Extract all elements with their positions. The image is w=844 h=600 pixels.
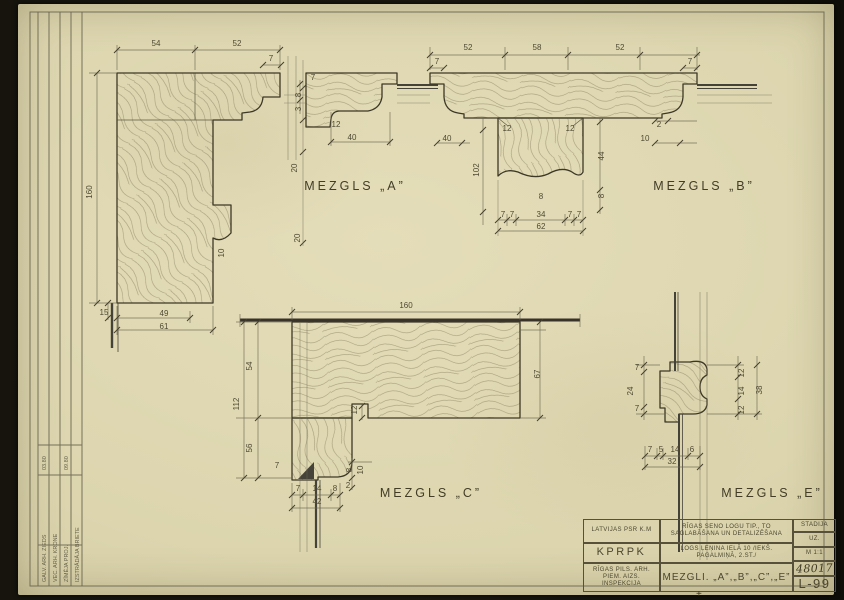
- dimension-text: 8: [345, 467, 354, 472]
- margin-date: 03.80: [42, 456, 48, 470]
- stage-label-text: STADIJA: [801, 522, 828, 529]
- dimension-text: 12: [503, 124, 512, 133]
- stamp-stage-value: UZ.: [793, 532, 836, 547]
- org-top-text: LATVIJAS PSR K.M: [592, 527, 652, 534]
- stage-value-text: UZ.: [809, 536, 820, 543]
- dimension-text: 42: [313, 497, 322, 506]
- stamp-sheet-title: MEZGLI. „A”,„B”,„C”,„E”: [660, 563, 793, 592]
- dimension-text: 7: [635, 363, 640, 372]
- dimension-text: 7: [510, 210, 515, 219]
- dimension-text: 40: [348, 133, 357, 142]
- stamp-project-title: RĪGAS SENO LOGU TIP., TO SAGLABĀŠANA UN …: [660, 519, 793, 543]
- dimension-text: 40: [443, 134, 452, 143]
- dimension-text: 7: [568, 210, 573, 219]
- dimension-text: 7: [635, 404, 640, 413]
- margin-date: 09.80: [64, 456, 70, 470]
- dimension-text: 38: [755, 385, 764, 394]
- stamp-scale: M 1:1: [793, 547, 836, 561]
- order-number-text: 48017: [796, 561, 833, 575]
- registration-mark: +: [696, 589, 702, 600]
- dimension-text: 102: [472, 163, 481, 177]
- margin-strip-grid: [38, 12, 82, 586]
- margin-signature-row: VEC. ARH. KRONE: [53, 533, 59, 582]
- wood-sash-a: [306, 73, 397, 127]
- dimension-text: 7: [577, 210, 582, 219]
- stamp-object: LOGS ĻEŅINA IELĀ 10 /IEKŠ. PAGALMIŅĀ, 2.…: [660, 543, 793, 563]
- dimension-text: 52: [464, 43, 473, 52]
- wood-jamb-c: [292, 418, 352, 480]
- stamp-org-main: KPRPK: [583, 543, 660, 563]
- dimension-text: 49: [160, 309, 169, 318]
- mezgls-e-label: MEZGLS „E”: [721, 486, 823, 500]
- dimension-text: 61: [160, 322, 169, 331]
- mezgls-c-label: MEZGLS „C”: [380, 486, 482, 500]
- dimension-text: 54: [245, 361, 254, 370]
- dimension-text: 54: [152, 39, 161, 48]
- dimension-text: 52: [616, 43, 625, 52]
- dimension-text: 6: [690, 445, 695, 454]
- margin-signature-row: ZĪMĒJA PROJ.: [63, 545, 70, 582]
- detail-mezgls-c: [236, 307, 580, 548]
- mezgls-b-label: MEZGLS „B”: [653, 179, 755, 193]
- photo-of-drawing: MEZGLS „A”545271607831240202010154961MEZ…: [0, 0, 844, 600]
- dimension-text: 7: [311, 73, 316, 82]
- scale-text: M 1:1: [806, 550, 823, 557]
- dimension-text: 5: [659, 445, 664, 454]
- detail-mezgls-e: [636, 292, 762, 552]
- wood-frame-corner-a: [117, 73, 280, 303]
- dimension-text: 62: [537, 222, 546, 231]
- org-sub-text: RĪGAS PILS. ARH. PIEM. AIZS. INSPEKCIJA: [585, 567, 658, 589]
- wood-sill-board-c: [292, 322, 520, 418]
- dimension-text: 7: [296, 484, 301, 493]
- object-text: LOGS ĻEŅINA IELĀ 10 /IEKŠ. PAGALMIŅĀ, 2.…: [662, 546, 791, 560]
- dimension-text: 8: [333, 484, 338, 493]
- dimension-text: 10: [217, 248, 226, 257]
- margin-signature-row: GALV. ARH. ZIEDS: [42, 534, 48, 582]
- dimension-text: 160: [85, 185, 94, 199]
- detail-mezgls-b: [427, 47, 757, 234]
- dimension-text: 2: [657, 120, 662, 129]
- detail-mezgls-a: [89, 45, 438, 352]
- dimension-text: 12: [566, 124, 575, 133]
- dimension-text: 24: [626, 386, 635, 395]
- dimension-text: 12: [737, 368, 746, 377]
- dimension-text: 34: [537, 210, 546, 219]
- stamp-org-sub: RĪGAS PILS. ARH. PIEM. AIZS. INSPEKCIJA: [583, 563, 660, 592]
- drawing-canvas: MEZGLS „A”545271607831240202010154961MEZ…: [0, 0, 844, 600]
- sheet-number-text: L-99: [798, 576, 830, 592]
- project-text: RĪGAS SENO LOGU TIP., TO SAGLABĀŠANA UN …: [662, 524, 791, 538]
- dimension-text: 160: [399, 301, 413, 310]
- org-main-text: KPRPK: [597, 546, 647, 559]
- dimension-text: 2: [346, 481, 351, 490]
- dimension-text: 7: [501, 210, 506, 219]
- dimension-text: 67: [533, 369, 542, 378]
- stamp-order-number: 48017: [793, 561, 836, 576]
- dimension-text: 32: [668, 457, 677, 466]
- dimension-text: 12: [350, 405, 359, 414]
- sheet-title-text: MEZGLI. „A”,„B”,„C”,„E”: [663, 572, 791, 584]
- dimension-text: 12: [332, 120, 341, 129]
- dimension-text: 20: [290, 163, 299, 172]
- dimension-text: 44: [597, 151, 606, 160]
- stamp-org-top: LATVIJAS PSR K.M: [583, 519, 660, 543]
- dimension-text: 8: [539, 192, 544, 201]
- dimension-text: 7: [648, 445, 653, 454]
- stamp-stage-label: STADIJA: [793, 519, 836, 532]
- title-block: LATVIJAS PSR K.M KPRPK RĪGAS PILS. ARH. …: [583, 519, 836, 592]
- dimension-text: 14: [737, 386, 746, 395]
- stamp-sheet-number: L-99: [793, 576, 836, 592]
- dimension-text: 52: [233, 39, 242, 48]
- dimension-text: 8: [294, 92, 303, 97]
- dimension-text: 7: [275, 461, 280, 470]
- dimension-text: 8: [597, 193, 606, 198]
- mezgls-a-label: MEZGLS „A”: [304, 179, 406, 193]
- dimension-text: 112: [232, 397, 241, 410]
- dimension-text: 7: [435, 57, 440, 66]
- margin-signature-row: IZSTRĀDĀJA BRIETE: [74, 527, 81, 582]
- dimension-text: 14: [671, 445, 680, 454]
- dimension-text: 12: [737, 405, 746, 414]
- dimension-text: 58: [533, 43, 542, 52]
- dimension-text: 7: [688, 57, 693, 66]
- dimension-text: 3: [294, 106, 303, 111]
- dimension-text: 7: [269, 54, 274, 63]
- dimension-text: 10: [641, 134, 650, 143]
- dimension-text: 20: [293, 233, 302, 242]
- dimension-text: 10: [356, 465, 365, 474]
- dimension-text: 56: [245, 443, 254, 452]
- wood-head-bar-b: [430, 73, 697, 118]
- dimension-text: 14: [313, 484, 322, 493]
- dimension-text: 15: [100, 308, 109, 317]
